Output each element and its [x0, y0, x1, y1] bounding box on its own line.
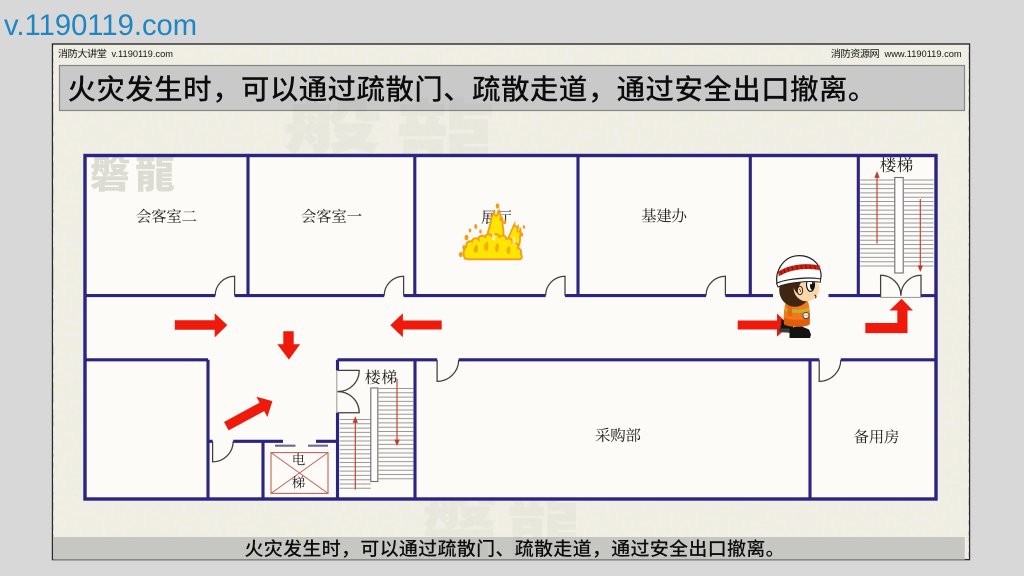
svg-text:www.1190119.com: www.1190119.com: [884, 49, 962, 59]
svg-text:v.1190119.com: v.1190119.com: [4, 10, 197, 42]
svg-text:v.1190119.com: v.1190119.com: [112, 49, 174, 59]
